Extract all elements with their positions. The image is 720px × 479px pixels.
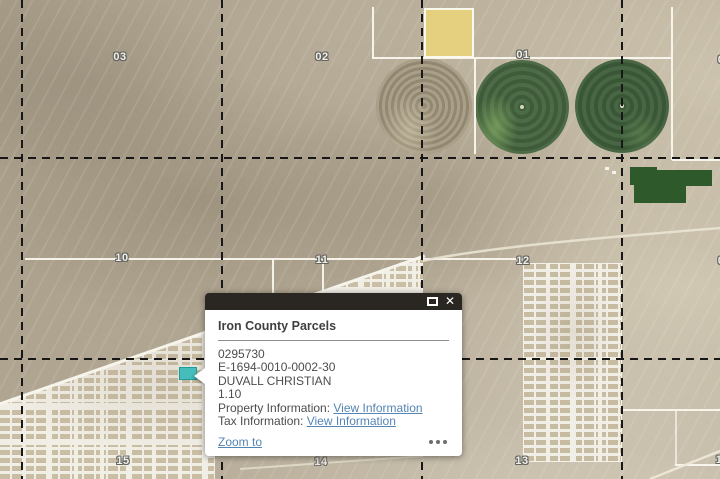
survey-line xyxy=(474,58,476,154)
survey-line xyxy=(671,7,673,160)
yellow-crop-field xyxy=(424,8,474,58)
dot xyxy=(436,440,440,444)
maximize-icon[interactable] xyxy=(427,297,438,306)
popup-title: Iron County Parcels xyxy=(218,317,449,340)
popup-body: Iron County Parcels 0295730 E-1694-0010-… xyxy=(205,310,462,428)
green-pivot-field-1 xyxy=(475,60,569,154)
section-label: 01 xyxy=(516,49,529,61)
section-line xyxy=(21,0,23,479)
dot xyxy=(429,440,433,444)
section-label: 10 xyxy=(115,252,128,264)
zoom-to-link[interactable]: Zoom to xyxy=(218,435,262,449)
popup-header: ✕ xyxy=(205,293,462,310)
map-canvas[interactable]: 03 02 01 0 10 11 12 0 15 14 13 1 ✕ Iron … xyxy=(0,0,720,479)
fallow-pivot-field xyxy=(376,58,472,154)
property-info-row: Property Information: View Information xyxy=(218,402,449,415)
survey-line xyxy=(25,258,523,260)
owner-name: DUVALL CHRISTIAN xyxy=(218,375,449,388)
property-info-label: Property Information: xyxy=(218,401,333,415)
survey-line xyxy=(622,409,720,411)
subdivision-grid-east xyxy=(523,263,622,462)
popup-footer: Zoom to xyxy=(218,435,449,449)
property-info-link[interactable]: View Information xyxy=(333,401,422,415)
parcel-number: E-1694-0010-0002-30 xyxy=(218,361,449,374)
parcel-id: 0295730 xyxy=(218,348,449,361)
close-icon[interactable]: ✕ xyxy=(445,297,455,306)
feature-popup: ✕ Iron County Parcels 0295730 E-1694-001… xyxy=(205,293,462,456)
parcel-acreage: 1.10 xyxy=(218,388,449,401)
farm-building xyxy=(605,167,609,170)
survey-line xyxy=(675,464,720,466)
section-line xyxy=(621,0,623,479)
pivot-center-dot xyxy=(520,105,524,109)
section-label: 11 xyxy=(316,254,329,266)
section-label: 1 xyxy=(716,454,720,466)
road-path xyxy=(422,228,720,261)
tax-info-row: Tax Information: View Information xyxy=(218,415,449,428)
green-crop-polygon xyxy=(628,164,716,205)
ellipsis-menu-icon[interactable] xyxy=(427,438,449,446)
section-line xyxy=(0,157,720,159)
section-label: 12 xyxy=(516,255,529,267)
tax-info-label: Tax Information: xyxy=(218,414,307,428)
tax-info-link[interactable]: View Information xyxy=(307,414,396,428)
survey-line xyxy=(672,159,720,161)
dot xyxy=(443,440,447,444)
section-label: 13 xyxy=(515,455,528,467)
popup-callout-arrow xyxy=(194,368,205,384)
road-path xyxy=(240,456,423,469)
section-label: 14 xyxy=(314,456,327,468)
parcel-attributes: 0295730 E-1694-0010-0002-30 DUVALL CHRIS… xyxy=(218,341,449,428)
farm-building xyxy=(612,171,616,174)
section-label: 15 xyxy=(116,455,129,467)
survey-line xyxy=(372,7,374,58)
survey-line xyxy=(675,410,677,465)
section-label: 02 xyxy=(315,51,328,63)
section-label: 03 xyxy=(113,51,126,63)
